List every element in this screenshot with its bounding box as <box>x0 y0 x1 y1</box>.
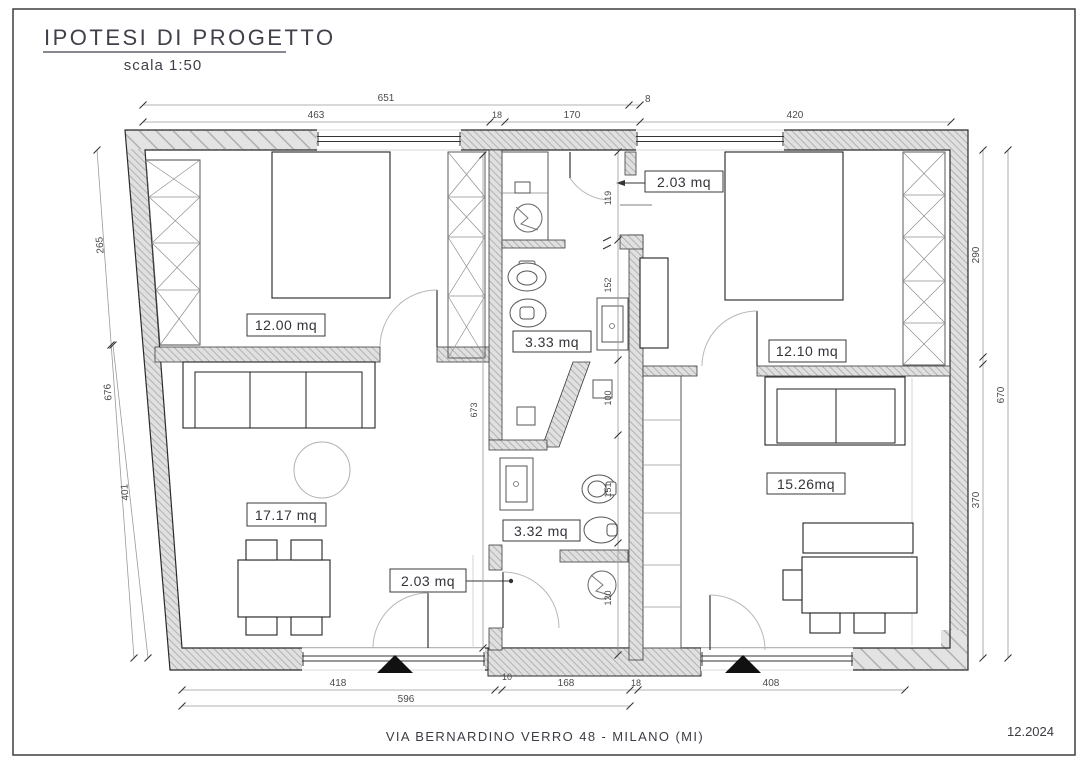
wall-bedroom-left-2 <box>437 347 489 362</box>
dim-100: 100 <box>603 390 613 405</box>
window-bottom-right <box>701 648 853 673</box>
dim-120: 120 <box>603 590 613 605</box>
wall-bottom-right-column <box>941 630 967 648</box>
date-label: 12.2024 <box>1007 724 1054 739</box>
dim-170: 170 <box>564 110 581 121</box>
wall-bath-left-stub1 <box>489 545 502 570</box>
sink-icon <box>500 458 533 510</box>
dining-table <box>238 560 330 617</box>
svg-text:3.32 mq: 3.32 mq <box>514 523 568 539</box>
chair <box>854 613 885 633</box>
bed-left <box>272 152 390 298</box>
svg-text:2.03 mq: 2.03 mq <box>401 573 455 589</box>
chair <box>246 617 277 635</box>
wall-bedroom-left <box>155 347 380 362</box>
bed-right <box>725 152 843 300</box>
dim-676: 676 <box>102 383 114 401</box>
chair <box>291 540 322 560</box>
dim-18-bottom: 18 <box>631 678 641 688</box>
svg-text:17.17 mq: 17.17 mq <box>255 507 317 523</box>
svg-text:3.33 mq: 3.33 mq <box>525 334 579 350</box>
sideboard <box>803 523 913 553</box>
svg-text:15.26mq: 15.26mq <box>777 476 835 492</box>
address-label: VIA BERNARDINO VERRO 48 - MILANO (MI) <box>386 729 704 744</box>
wall-bath-mid <box>489 440 547 450</box>
window-top-right <box>636 129 784 151</box>
page-title: IPOTESI DI PROGETTO <box>44 25 336 50</box>
dim-168: 168 <box>558 678 575 689</box>
dim-8: 8 <box>645 94 651 105</box>
bidet-icon <box>510 299 546 327</box>
kitchen-units <box>643 376 681 648</box>
window-bottom-left <box>302 648 485 673</box>
dim-370: 370 <box>971 491 982 508</box>
wall-bottom-right-corner <box>853 648 967 669</box>
shaft-box <box>517 407 535 425</box>
chair <box>810 613 840 633</box>
room-label-living-left: 17.17 mq <box>247 503 326 526</box>
wall-bath-left-stub2 <box>489 628 502 650</box>
svg-text:2.03 mq: 2.03 mq <box>657 174 711 190</box>
svg-text:12.00 mq: 12.00 mq <box>255 317 317 333</box>
bidet-icon <box>584 517 618 543</box>
dim-119: 119 <box>603 191 613 205</box>
dim-10: 10 <box>502 672 512 682</box>
leader-dot <box>509 579 513 583</box>
dim-418: 418 <box>330 678 347 689</box>
washing-machine-icon <box>514 204 542 232</box>
dim-596: 596 <box>398 694 415 705</box>
dim-401: 401 <box>119 483 131 501</box>
floor-plan-sheet: IPOTESI DI PROGETTO scala 1:50 <box>0 0 1088 765</box>
room-label-bathroom-bottom: 3.32 mq <box>503 520 580 541</box>
dim-408: 408 <box>763 678 780 689</box>
chair <box>291 617 322 635</box>
window-top-left <box>317 129 461 151</box>
dim-290: 290 <box>971 246 982 263</box>
wall-bedroom-right-1 <box>643 366 697 376</box>
wall-entry-stub <box>625 152 636 175</box>
room-label-bathroom-top: 3.33 mq <box>513 331 591 352</box>
dim-151: 151 <box>603 482 613 497</box>
wall-bath-left-upper <box>489 150 502 440</box>
room-label-living-right: 15.26mq <box>767 473 845 494</box>
wall-bottom-center-block <box>488 648 701 676</box>
desk <box>802 557 917 613</box>
dim-18-top: 18 <box>492 110 502 120</box>
room-label-bedroom-left: 12.00 mq <box>247 314 325 336</box>
room-label-bedroom-right: 12.10 mq <box>769 340 846 362</box>
cabinet-right-bedroom <box>640 258 668 348</box>
dim-265: 265 <box>94 236 106 254</box>
dim-670: 670 <box>996 386 1007 403</box>
desk-return <box>783 570 802 600</box>
dim-420: 420 <box>787 110 804 121</box>
dim-673: 673 <box>469 402 479 417</box>
dim-651: 651 <box>378 93 395 104</box>
wall-top-left-segment <box>126 131 316 149</box>
wall-bedroom-right-2 <box>757 366 950 376</box>
chair <box>246 540 277 560</box>
dim-463: 463 <box>308 110 325 121</box>
wall-entry-block <box>620 235 643 249</box>
small-box <box>515 182 530 193</box>
wall-bath-top-divider <box>502 240 565 248</box>
sofa-right <box>765 377 905 445</box>
svg-text:12.10 mq: 12.10 mq <box>776 343 838 359</box>
dim-152: 152 <box>603 277 613 292</box>
sink-icon <box>597 298 628 350</box>
scale-label: scala 1:50 <box>124 57 202 74</box>
